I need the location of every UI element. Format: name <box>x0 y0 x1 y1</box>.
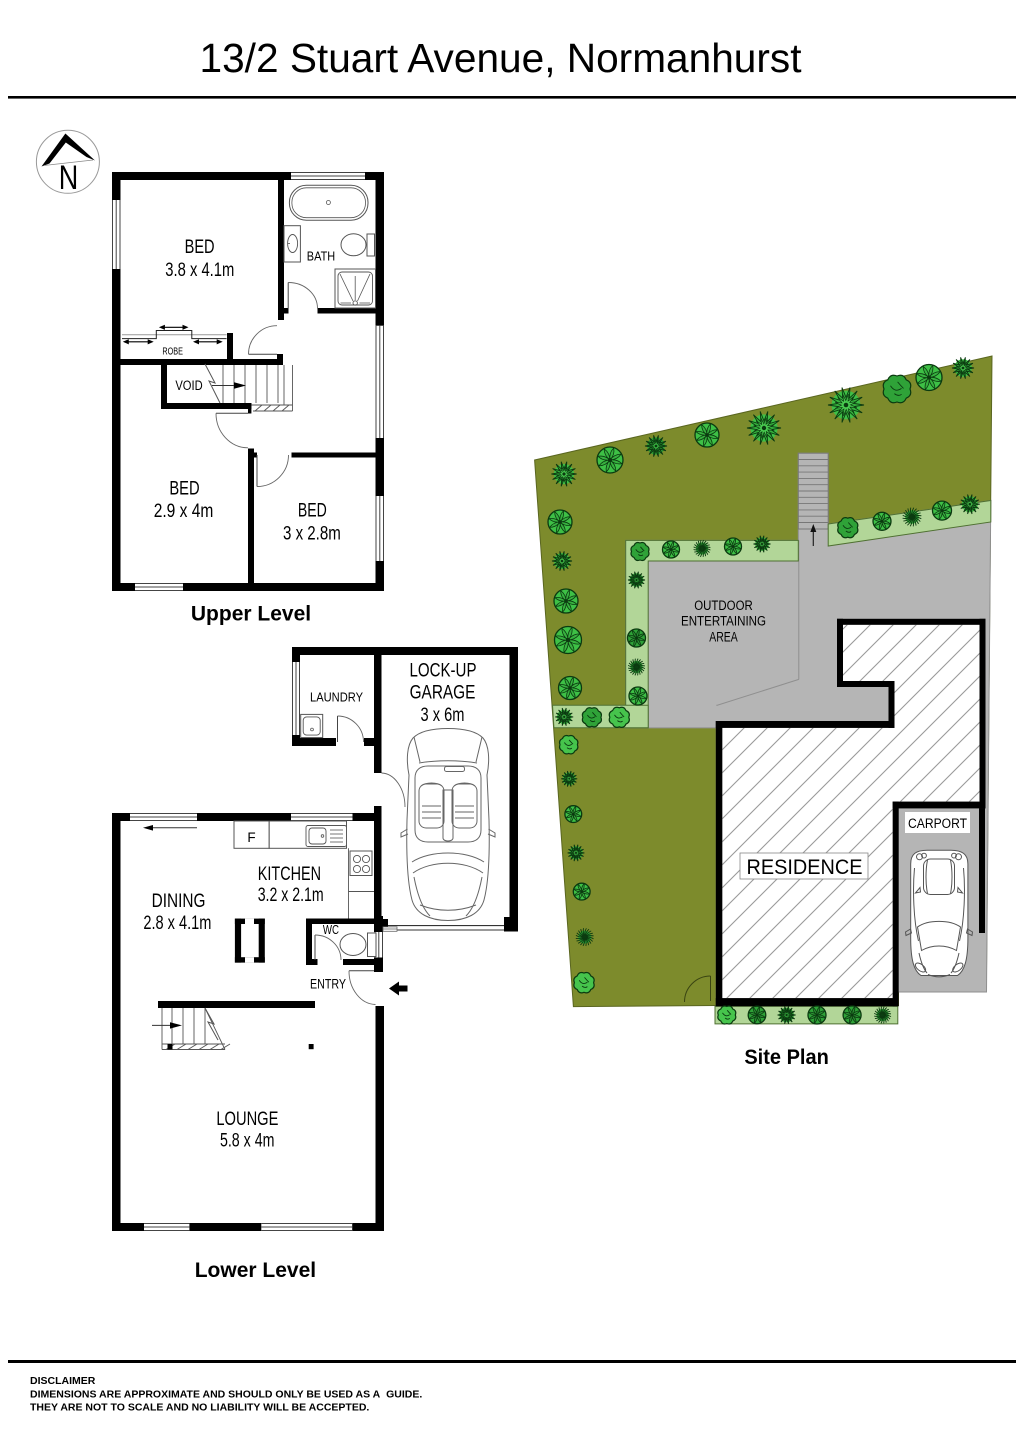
svg-text:OUTDOOR: OUTDOOR <box>694 598 753 613</box>
svg-text:Upper Level: Upper Level <box>191 602 311 625</box>
svg-text:BATH: BATH <box>307 248 335 263</box>
svg-text:KITCHEN: KITCHEN <box>258 863 321 885</box>
svg-text:ENTRY: ENTRY <box>310 977 346 992</box>
svg-text:DISCLAIMER: DISCLAIMER <box>30 1375 96 1387</box>
svg-text:13/2 Stuart Avenue, Normanhurs: 13/2 Stuart Avenue, Normanhurst <box>200 35 802 81</box>
svg-text:AREA: AREA <box>709 629 738 644</box>
svg-text:BED: BED <box>185 236 215 258</box>
svg-text:2.8 x 4.1m: 2.8 x 4.1m <box>143 912 211 934</box>
svg-text:LAUNDRY: LAUNDRY <box>310 691 364 705</box>
svg-text:ENTERTAINING: ENTERTAINING <box>681 614 766 629</box>
svg-text:3.8 x 4.1m: 3.8 x 4.1m <box>165 259 234 281</box>
svg-text:THEY ARE NOT TO SCALE AND NO L: THEY ARE NOT TO SCALE AND NO LIABILITY W… <box>30 1402 369 1414</box>
svg-text:Lower Level: Lower Level <box>195 1259 316 1282</box>
svg-text:5.8 x 4m: 5.8 x 4m <box>220 1130 275 1152</box>
svg-text:3.2 x 2.1m: 3.2 x 2.1m <box>258 884 324 906</box>
svg-text:GARAGE: GARAGE <box>410 682 476 704</box>
svg-text:3 x 6m: 3 x 6m <box>421 704 465 726</box>
svg-text:Site Plan: Site Plan <box>744 1046 829 1069</box>
svg-text:BED: BED <box>169 478 199 500</box>
svg-text:VOID: VOID <box>175 378 202 393</box>
svg-text:WC: WC <box>323 922 339 937</box>
svg-text:DIMENSIONS ARE APPROXIMATE AND: DIMENSIONS ARE APPROXIMATE AND SHOULD ON… <box>30 1389 422 1401</box>
svg-text:LOUNGE: LOUNGE <box>216 1108 278 1130</box>
svg-text:N: N <box>59 159 79 197</box>
svg-text:BED: BED <box>298 500 327 522</box>
svg-text:ROBE: ROBE <box>162 347 183 358</box>
svg-text:3 x 2.8m: 3 x 2.8m <box>283 523 341 545</box>
svg-text:F: F <box>247 830 255 845</box>
svg-text:2.9 x 4m: 2.9 x 4m <box>154 500 214 522</box>
svg-text:RESIDENCE: RESIDENCE <box>747 856 863 879</box>
svg-text:DINING: DINING <box>152 890 206 912</box>
svg-text:CARPORT: CARPORT <box>908 816 967 831</box>
svg-text:LOCK-UP: LOCK-UP <box>410 660 477 682</box>
